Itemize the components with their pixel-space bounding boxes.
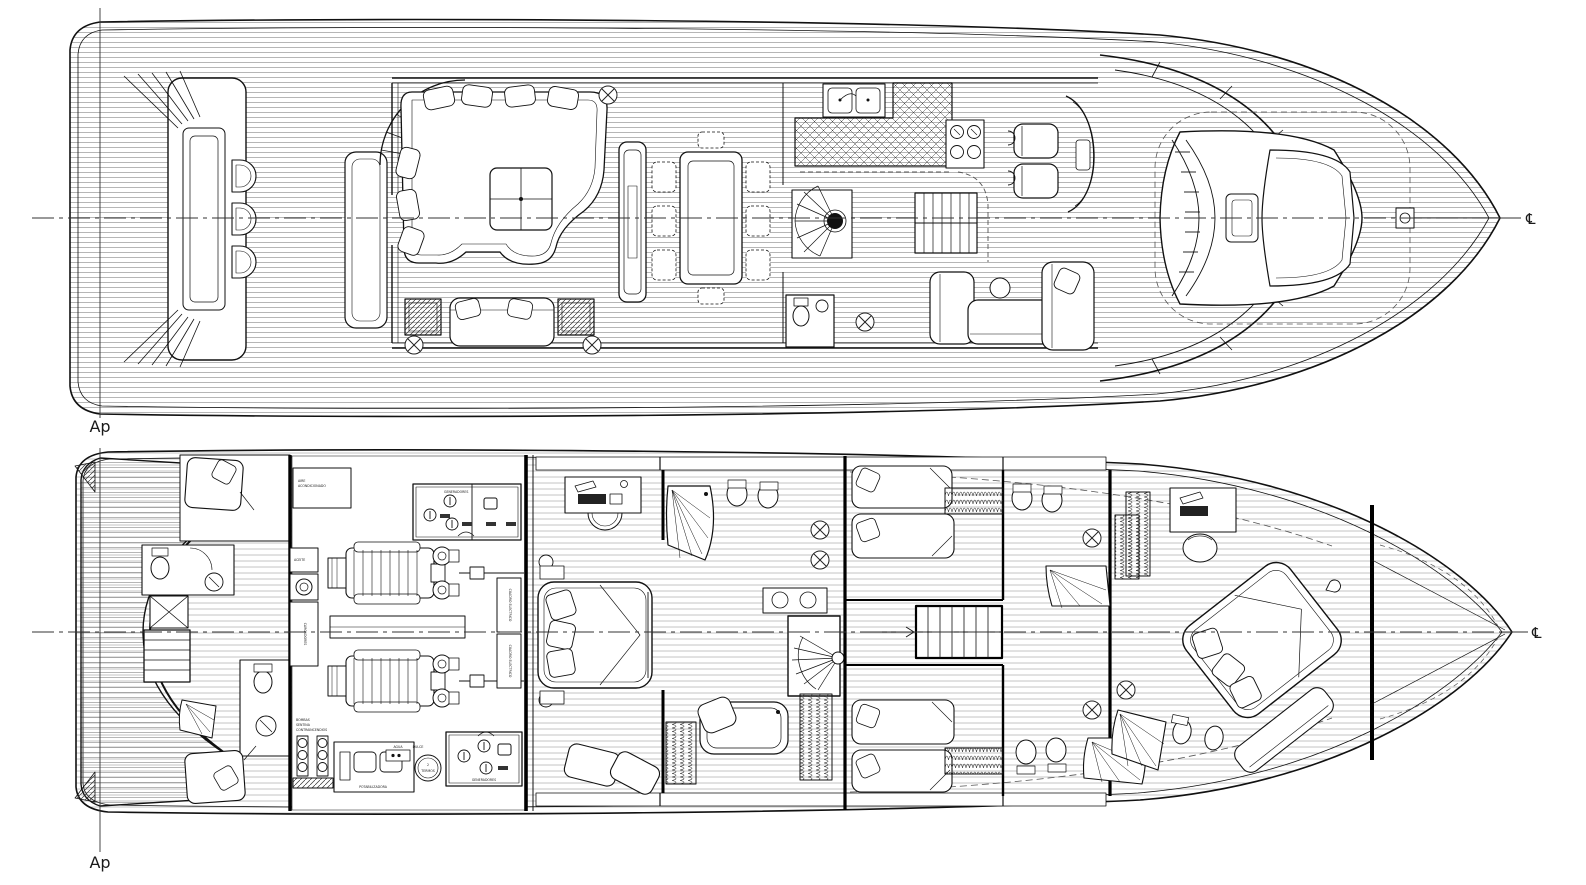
deck-fitting-icon (405, 336, 423, 354)
generators-fwd: GENERADORES (413, 484, 521, 540)
svg-text:AGUA: AGUA (393, 745, 403, 749)
guest-wardrobe-stbd (945, 748, 1003, 774)
engine-room: AIRE ACONDICIONADO GENERADORES ACEITE CA… (290, 455, 533, 811)
salon-lounger (450, 297, 554, 346)
yacht-general-arrangement: AIRE ACONDICIONADO GENERADORES ACEITE CA… (0, 0, 1586, 885)
svg-text:CONTRAINCENDIOS: CONTRAINCENDIOS (296, 728, 327, 732)
lower-deck-plan: AIRE ACONDICIONADO GENERADORES ACEITE CA… (32, 448, 1528, 852)
svg-text:BOMBAS: BOMBAS (296, 718, 310, 722)
centerline-symbol-main: ℄ (1525, 210, 1536, 228)
stairs-down (915, 193, 977, 253)
sideboard (619, 142, 646, 302)
main-deck-plan (32, 8, 1521, 418)
crew-stairs (144, 630, 190, 682)
deck-fitting-icon (583, 336, 601, 354)
spiral-stairs (792, 186, 852, 258)
svg-text:POTABILIZADORA: POTABILIZADORA (359, 785, 388, 789)
ac-unit: AIRE ACONDICIONADO (293, 468, 351, 508)
svg-text:GENERADORES: GENERADORES (472, 778, 496, 782)
helm-seat-2 (1008, 164, 1058, 198)
deck-fitting-icon (599, 86, 617, 104)
master-wardrobe-1 (666, 722, 696, 784)
centerline-symbol-lower: ℄ (1531, 624, 1542, 642)
guest-bed-stbd-1 (852, 700, 954, 744)
svg-text:ACONDICIONADO: ACONDICIONADO (298, 484, 326, 488)
master-bed (538, 566, 652, 704)
watermaker: POTABILIZADORA AGUA DULCE (334, 742, 423, 792)
aft-seats (232, 160, 256, 278)
svg-text:CARGADORES: CARGADORES (303, 623, 307, 646)
svg-text:CUADRO ELECTRICO: CUADRO ELECTRICO (508, 645, 512, 678)
master-spiral-stairs (788, 616, 844, 696)
crew-bath-1 (142, 545, 234, 595)
ap-label-main: Ap (89, 417, 110, 436)
svg-text:SENTINA: SENTINA (296, 723, 311, 727)
svg-text:2: 2 (427, 763, 429, 767)
transom-seating (168, 78, 256, 360)
oil-chargers-panel: ACEITE CARGADORES (290, 548, 318, 666)
guest-bed-port-1 (852, 466, 952, 508)
ap-label-lower: Ap (89, 853, 110, 872)
guest-bed-stbd-2 (852, 750, 952, 792)
master-wardrobe-2 (800, 694, 832, 780)
svg-text:DULCE: DULCE (413, 745, 424, 749)
vip-wardrobe (1126, 492, 1150, 576)
generators-aft: GENERADORES (446, 732, 522, 786)
guest-wardrobe-port (945, 488, 1003, 514)
svg-text:AIRE: AIRE (298, 479, 305, 483)
svg-text:GENERADORES: GENERADORES (444, 490, 468, 494)
water-heaters: 2 TERMOS (415, 755, 441, 781)
deck-plans-drawing: AIRE ACONDICIONADO GENERADORES ACEITE CA… (0, 0, 1586, 885)
svg-text:TERMOS: TERMOS (420, 769, 434, 773)
engine-starboard (328, 650, 459, 712)
guest-bed-port-2 (852, 514, 954, 558)
helm-seat-1 (1008, 124, 1058, 158)
engine-port (328, 542, 459, 604)
side-deck-sofa (1042, 262, 1094, 350)
svg-text:CUADRO ELECTRICO: CUADRO ELECTRICO (508, 589, 512, 622)
galley-stove (946, 120, 984, 168)
coffee-table (490, 168, 552, 230)
cockpit-bench (345, 152, 387, 328)
svg-text:ACEITE: ACEITE (294, 558, 305, 562)
